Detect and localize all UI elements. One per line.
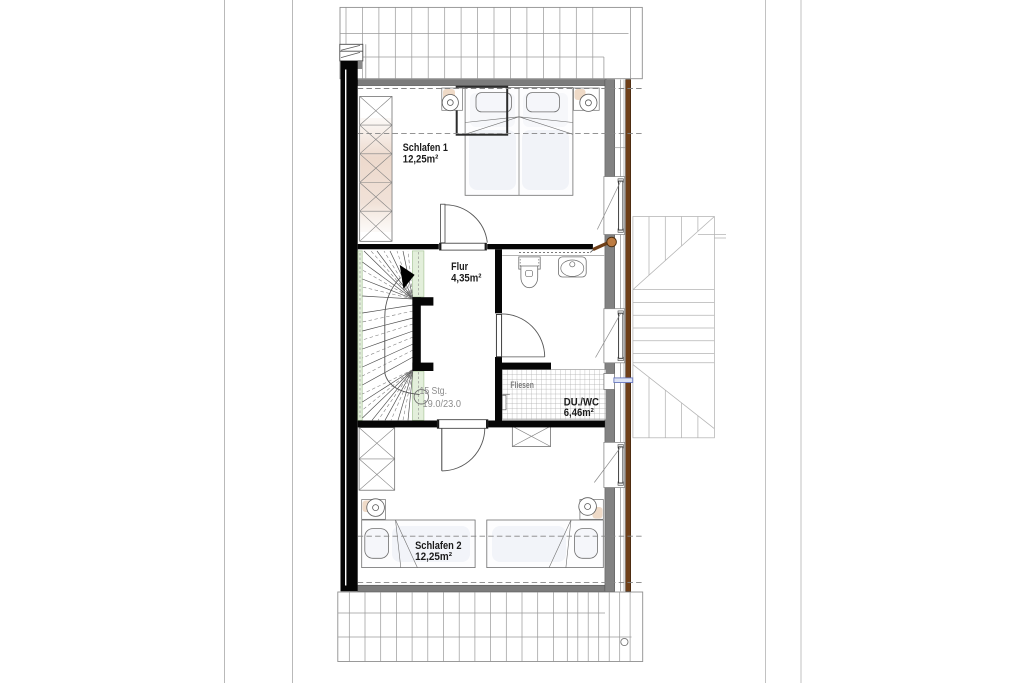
- svg-text:Fliesen: Fliesen: [510, 380, 534, 390]
- svg-text:Flur: Flur: [451, 261, 468, 273]
- svg-text:Schlafen 1: Schlafen 1: [403, 142, 448, 154]
- svg-text:15 Stg.: 15 Stg.: [420, 386, 448, 397]
- svg-text:Schlafen 2: Schlafen 2: [415, 540, 462, 552]
- svg-text:4,35m²: 4,35m²: [451, 272, 482, 284]
- svg-text:12,25m²: 12,25m²: [415, 551, 452, 563]
- svg-text:6,46m²: 6,46m²: [564, 407, 594, 419]
- svg-text:12,25m²: 12,25m²: [403, 153, 439, 165]
- svg-text:19.0/23.0: 19.0/23.0: [423, 399, 462, 410]
